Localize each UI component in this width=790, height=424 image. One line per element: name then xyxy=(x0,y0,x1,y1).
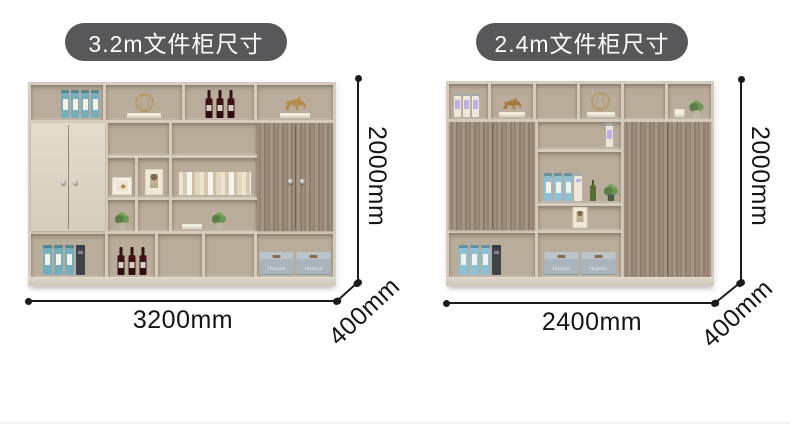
storage-box: TRUCKS xyxy=(297,252,331,275)
height-dimension-line-left xyxy=(357,78,359,283)
cabinet-compartment xyxy=(172,200,257,231)
book-stack xyxy=(127,113,161,118)
wood-double-door xyxy=(257,123,333,231)
cabinet-compartment xyxy=(538,152,621,203)
cabinet-compartment xyxy=(172,158,257,197)
wood-double-door xyxy=(449,122,535,230)
storage-box-label: TRUCKS xyxy=(544,266,578,271)
decor-group xyxy=(182,208,228,229)
wine-bottle xyxy=(216,98,223,118)
cabinet-compartment xyxy=(624,84,665,119)
binder-file xyxy=(470,245,479,275)
cabinet-compartment xyxy=(108,158,135,197)
books-row xyxy=(179,172,251,195)
plant xyxy=(212,212,226,229)
green-vase xyxy=(590,185,596,201)
book-stack xyxy=(182,224,202,229)
cabinet-compartment xyxy=(257,85,333,120)
cabinet-compartment xyxy=(108,123,169,155)
wine-group xyxy=(205,90,234,118)
decor-group xyxy=(572,207,587,228)
storage-box-label: TRUCKS xyxy=(581,266,615,271)
binder-group xyxy=(454,93,479,117)
wine-bottle xyxy=(205,98,212,118)
door-knob xyxy=(288,179,293,184)
cabinet-compartment xyxy=(158,234,202,277)
binder-file xyxy=(481,245,490,275)
door-seam xyxy=(667,124,668,275)
book-stack xyxy=(587,112,615,117)
cabinet-compartment xyxy=(668,84,711,119)
wine-group xyxy=(117,247,146,275)
binder-file xyxy=(574,173,582,201)
wire-ball-decor xyxy=(135,93,154,112)
cabinet-compartment xyxy=(31,85,103,120)
binder-file xyxy=(43,245,52,275)
decor-group xyxy=(544,173,620,201)
cabinet-compartment xyxy=(205,234,254,277)
horse-figurine xyxy=(282,96,308,112)
wood-tall-door xyxy=(624,122,711,277)
storage-box-label: TRUCKS xyxy=(297,266,331,271)
binder-group xyxy=(606,123,613,147)
cabinet-compartment xyxy=(449,84,488,119)
binder-file xyxy=(544,173,552,201)
cabinet-illustration-2-4m: TRUCKS TRUCKS xyxy=(446,81,714,286)
binder-file xyxy=(61,90,69,118)
binder-file xyxy=(54,245,63,275)
storage-box: TRUCKS xyxy=(581,252,615,275)
wire-ball-decor xyxy=(591,92,610,111)
picture-frame xyxy=(112,177,132,195)
size-badge-3-2m-label: 3.2m文件柜尺寸 xyxy=(88,25,263,59)
cabinet-dimensions-figure: 3.2m文件柜尺寸 xyxy=(0,0,790,424)
decor-group xyxy=(113,208,131,229)
height-dimension-label-right: 2000mm xyxy=(745,126,774,226)
cabinet-compartment xyxy=(108,234,155,277)
binder-file xyxy=(65,245,74,275)
width-dimension-label-left: 3200mm xyxy=(103,306,263,335)
decor-group xyxy=(674,96,705,117)
cabinet-compartment xyxy=(172,123,257,155)
cabinet-compartment: TRUCKS TRUCKS xyxy=(538,233,621,277)
binder-group xyxy=(61,90,99,118)
binder-group xyxy=(459,245,501,275)
height-dimension-label-left: 2000mm xyxy=(362,126,391,226)
door-seam xyxy=(68,125,69,229)
cabinet-illustration-3-2m: TRUCKS TRUCKS xyxy=(28,82,336,286)
small-box xyxy=(674,109,684,117)
cabinet-base xyxy=(446,277,714,286)
binder-file xyxy=(76,245,85,275)
cabinet-compartment xyxy=(536,84,577,119)
portrait-card xyxy=(572,207,587,228)
binder-file xyxy=(564,173,572,201)
size-badge-2-4m-label: 2.4m文件柜尺寸 xyxy=(494,25,669,59)
binder-file xyxy=(606,123,613,147)
decor-group xyxy=(112,177,132,195)
decor-group xyxy=(499,97,525,117)
decor-group xyxy=(127,93,161,118)
wine-bottle xyxy=(139,255,146,275)
width-dimension-label-right: 2400mm xyxy=(512,308,672,337)
binder-file xyxy=(463,93,470,117)
binder-file xyxy=(554,173,562,201)
book-stack xyxy=(499,112,525,117)
cabinet-base xyxy=(28,277,336,286)
decor-group xyxy=(145,169,163,195)
portrait-card xyxy=(145,169,163,195)
cabinet-compartment xyxy=(491,84,533,119)
storage-box: TRUCKS xyxy=(260,252,294,275)
cabinet-compartment xyxy=(138,158,169,197)
binder-file xyxy=(472,93,479,117)
horse-figurine xyxy=(501,97,523,111)
cabinet-compartment xyxy=(449,233,535,277)
plant xyxy=(689,100,703,117)
box-group: TRUCKS TRUCKS xyxy=(260,252,331,275)
width-dimension-line-right xyxy=(446,302,715,304)
depth-dimension-line-left xyxy=(336,282,357,302)
height-dimension-line-right xyxy=(740,79,742,283)
cabinet-compartment xyxy=(138,200,169,231)
door-knob xyxy=(61,180,66,185)
storage-box-label: TRUCKS xyxy=(260,266,294,271)
decor-group xyxy=(179,172,251,195)
binder-file xyxy=(71,90,79,118)
binder-group xyxy=(43,245,85,275)
plant xyxy=(604,184,618,201)
binder-file xyxy=(454,93,461,117)
cabinet-compartment xyxy=(31,234,105,277)
box-group: TRUCKS TRUCKS xyxy=(544,252,615,275)
decor-group xyxy=(280,96,310,118)
cabinet-compartment xyxy=(580,84,621,119)
binder-file xyxy=(492,245,501,275)
cabinet-compartment xyxy=(538,122,621,149)
cabinet-compartment: TRUCKS TRUCKS xyxy=(257,234,333,277)
plant xyxy=(114,212,128,229)
cabinet-compartment xyxy=(538,206,621,230)
door-knob xyxy=(73,180,78,185)
cabinet-compartment xyxy=(185,85,254,120)
wine-bottle xyxy=(227,98,234,118)
size-badge-2-4m: 2.4m文件柜尺寸 xyxy=(476,23,688,61)
cream-double-door xyxy=(31,123,105,231)
wine-bottle xyxy=(117,255,124,275)
size-badge-3-2m: 3.2m文件柜尺寸 xyxy=(65,23,287,61)
decor-group xyxy=(587,92,615,117)
binder-file xyxy=(91,90,99,118)
wine-bottle xyxy=(128,255,135,275)
door-seam xyxy=(295,125,296,229)
door-seam xyxy=(492,124,493,228)
storage-box: TRUCKS xyxy=(544,252,578,275)
book-stack xyxy=(280,113,310,118)
depth-dimension-label-right: 400mm xyxy=(696,275,777,353)
binder-file xyxy=(81,90,89,118)
width-dimension-line-left xyxy=(28,300,337,302)
cabinet-compartment xyxy=(106,85,182,120)
door-knob xyxy=(300,179,305,184)
binder-file xyxy=(459,245,468,275)
cabinet-compartment xyxy=(108,200,135,231)
